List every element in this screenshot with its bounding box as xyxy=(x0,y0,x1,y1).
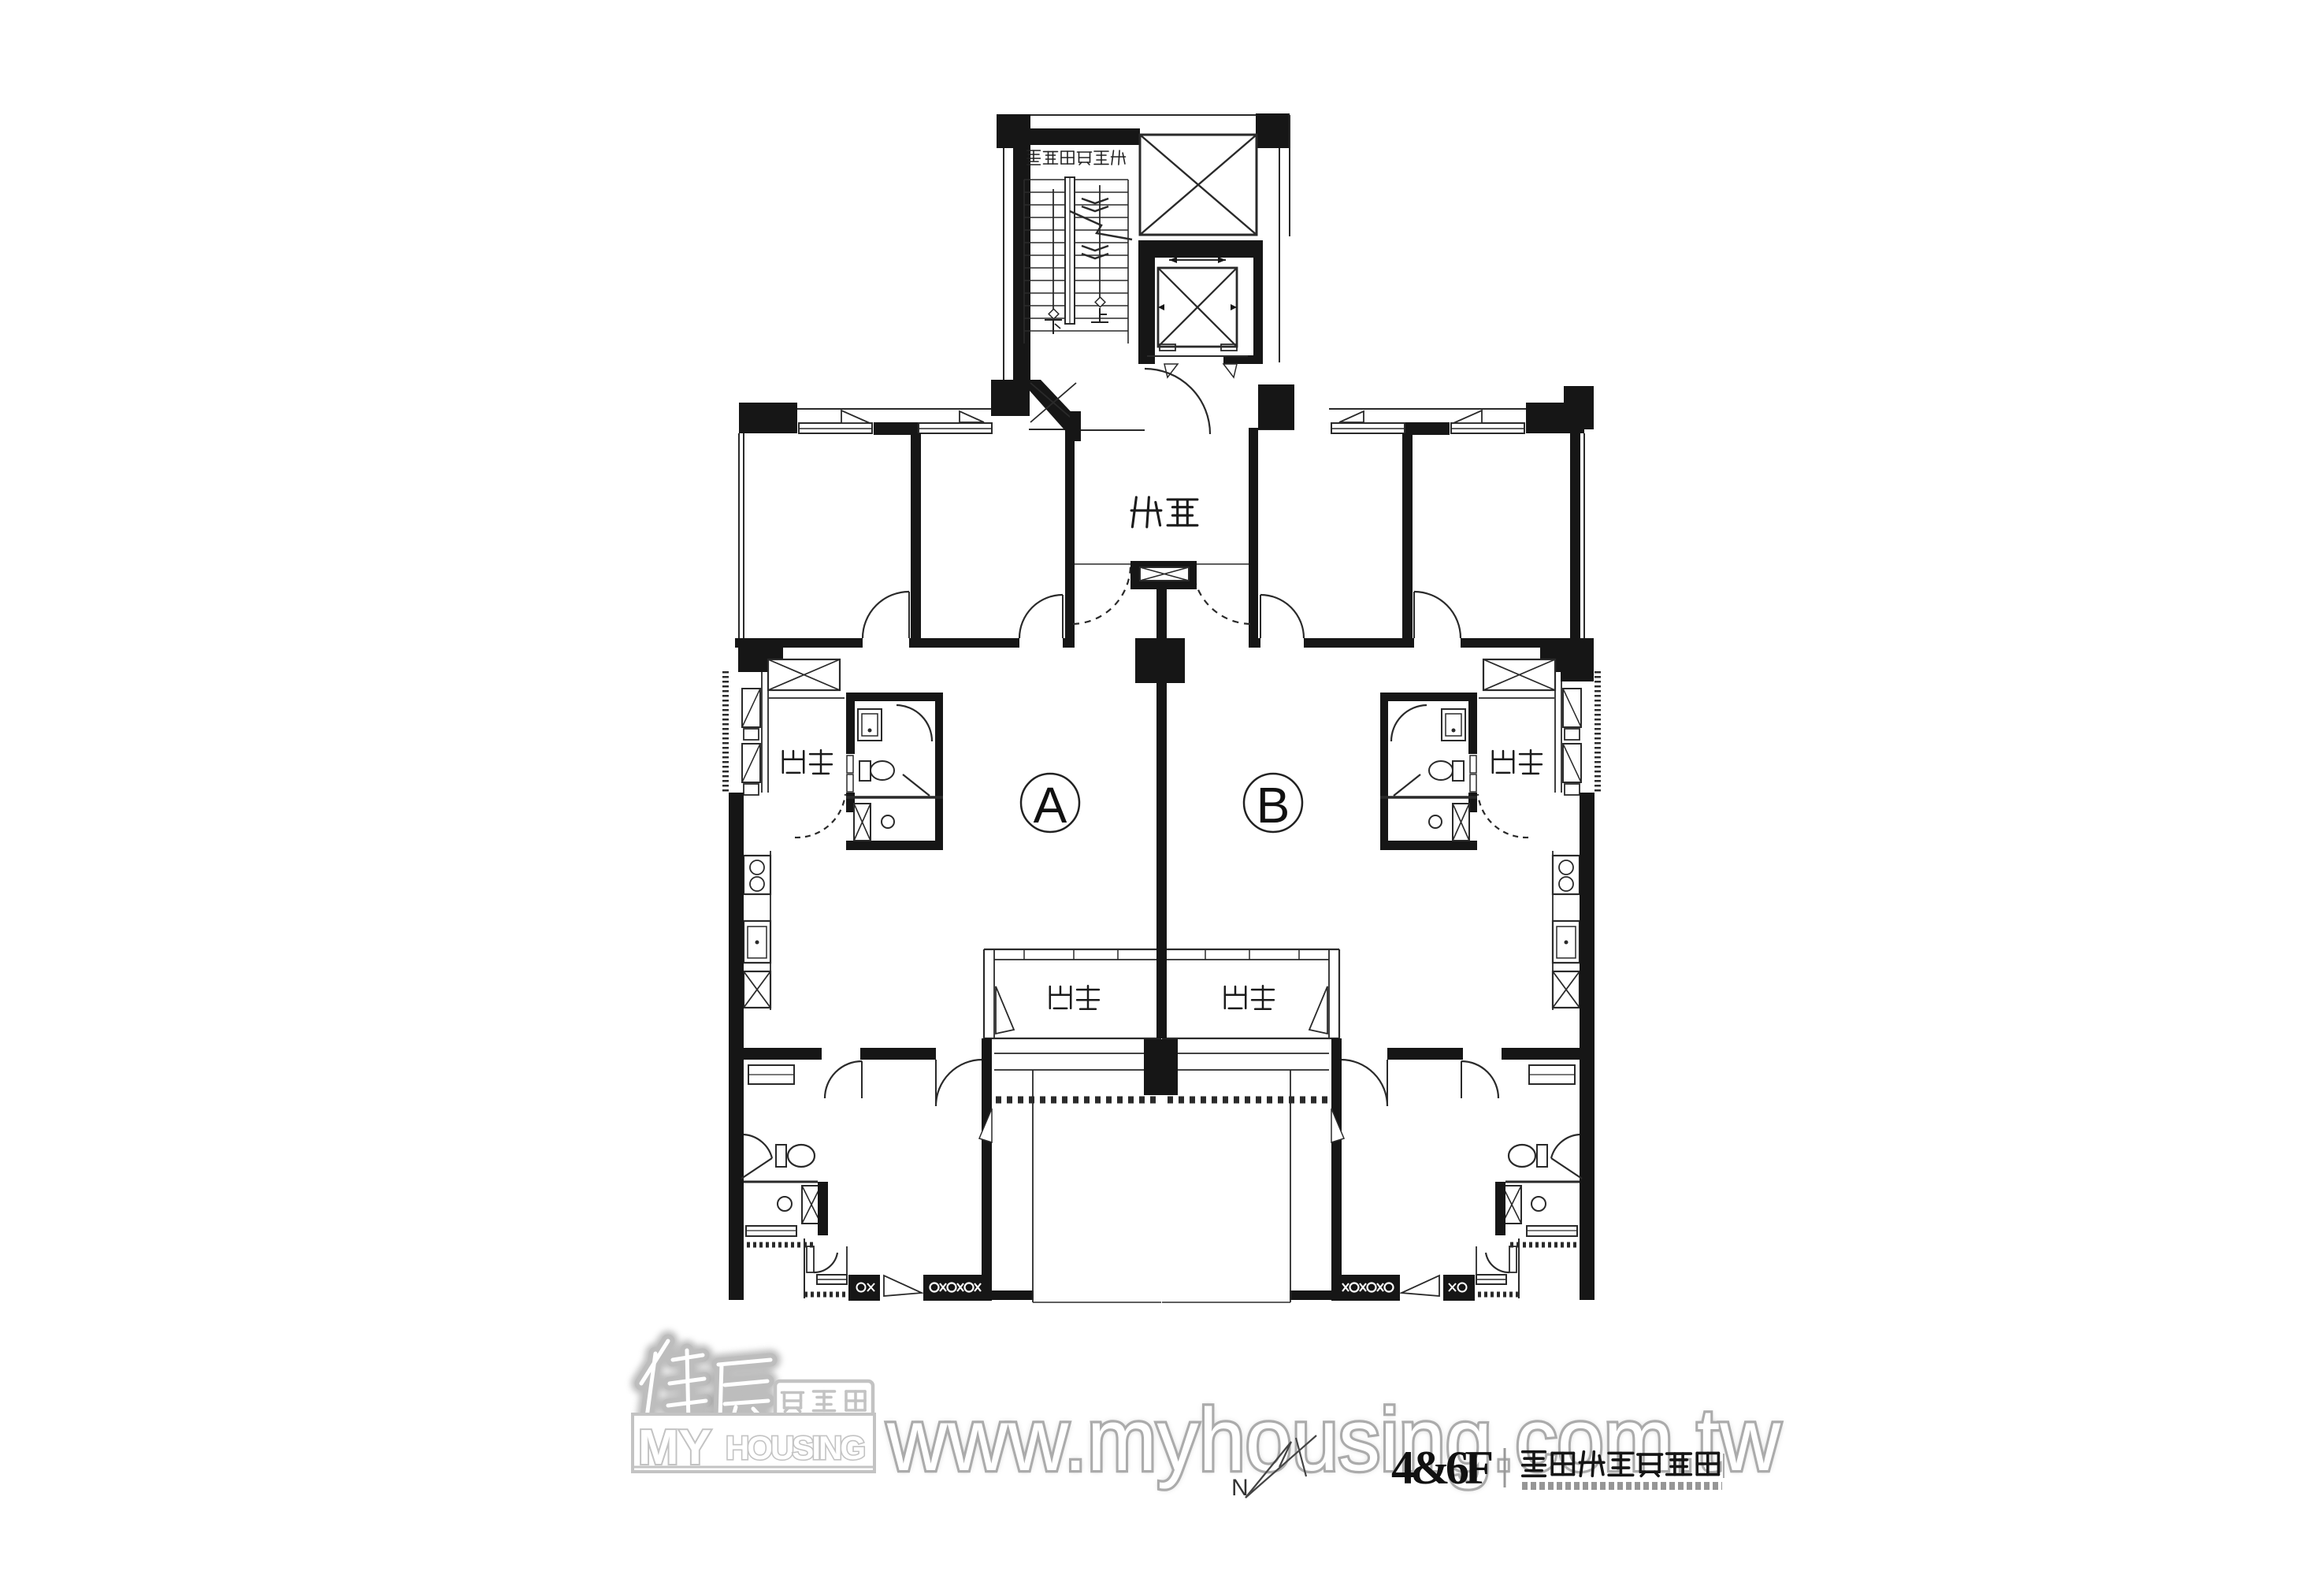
svg-text:HOUSING: HOUSING xyxy=(726,1429,866,1466)
svg-text:N: N xyxy=(1231,1475,1249,1501)
svg-text:A: A xyxy=(1034,777,1067,834)
svg-text:B: B xyxy=(1257,777,1290,834)
svg-text:4&6F: 4&6F xyxy=(1391,1442,1494,1494)
svg-text:MY: MY xyxy=(638,1420,711,1475)
svg-text:www.myhousing.com.tw: www.myhousing.com.tw xyxy=(886,1391,1781,1489)
